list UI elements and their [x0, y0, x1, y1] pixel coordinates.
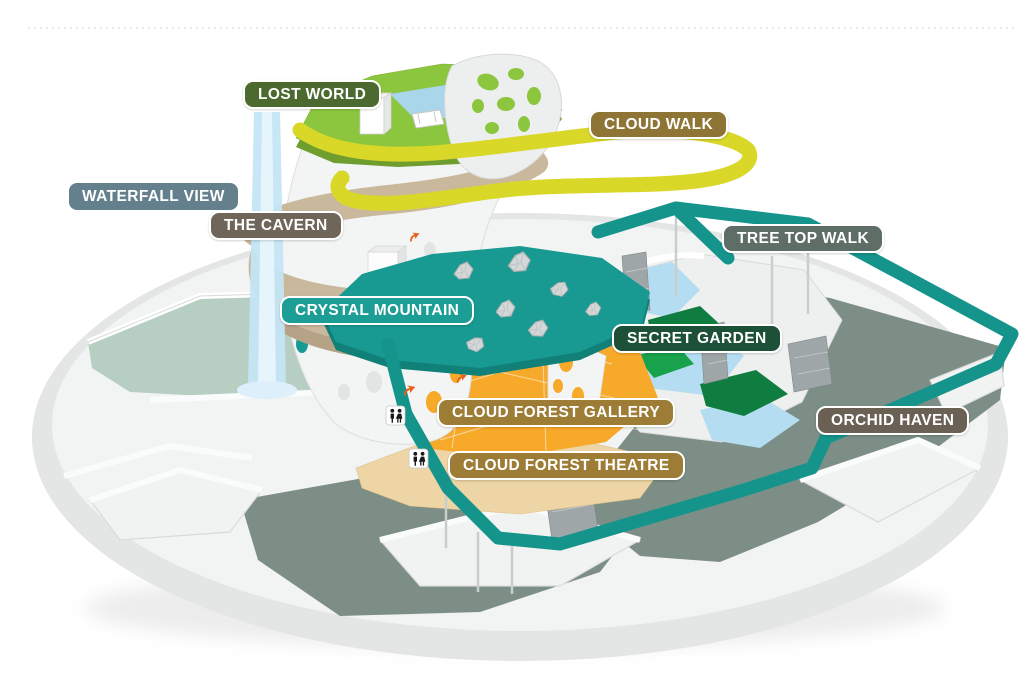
map-label-crystal-mountain[interactable]: CRYSTAL MOUNTAIN — [280, 296, 474, 325]
stone-panel — [788, 336, 832, 392]
map-label-waterfall-view[interactable]: WATERFALL VIEW — [69, 183, 238, 210]
map-illustration — [0, 0, 1024, 683]
map-label-lost-world[interactable]: LOST WORLD — [243, 80, 381, 109]
cloud-forest-map: LOST WORLD CLOUD WALK WATERFALL VIEW THE… — [0, 0, 1024, 683]
map-label-tree-top-walk[interactable]: TREE TOP WALK — [722, 224, 884, 253]
map-label-orchid-haven[interactable]: ORCHID HAVEN — [816, 406, 969, 435]
map-label-cloud-walk[interactable]: CLOUD WALK — [589, 110, 728, 139]
restroom-icon — [409, 449, 428, 468]
map-label-secret-garden[interactable]: SECRET GARDEN — [612, 324, 782, 353]
map-label-cloud-forest-gallery[interactable]: CLOUD FOREST GALLERY — [437, 398, 675, 427]
map-label-cloud-forest-theatre[interactable]: CLOUD FOREST THEATRE — [448, 451, 685, 480]
map-label-the-cavern[interactable]: THE CAVERN — [209, 211, 343, 240]
restroom-icon — [386, 406, 405, 425]
